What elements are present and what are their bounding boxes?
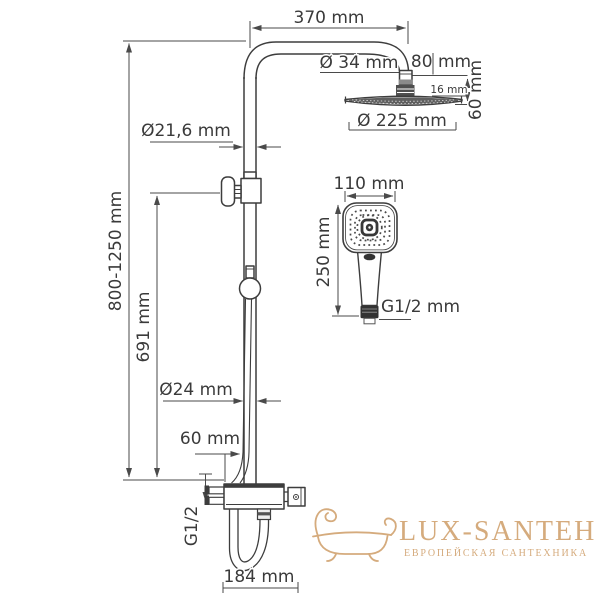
dim-lower-pipe-diameter-label: Ø24 mm [159,380,233,400]
shower-system-drawing: 370 mm Ø 34 mm 80 mm 16 mm 60 mm Ø 225 m… [0,0,600,600]
dim-mixer-width-label: 184 mm [224,567,295,587]
dim-outlet-offset-label: 60 mm [180,429,240,449]
diverter-knob [240,266,261,299]
dim-head-height-label: 60 mm [466,60,486,120]
mode-button [364,254,376,261]
arm-connector [396,71,415,98]
dim-handshower-width-label: 110 mm [334,174,405,194]
watermark: LUX-SANTEH ЕВРОПЕЙСКАЯ САНТЕХНИКА [313,509,596,561]
technical-drawing-svg: 370 mm Ø 34 mm 80 mm 16 mm 60 mm Ø 225 m… [0,0,600,600]
dim-total-height-label: 800-1250 mm [106,191,126,311]
dim-rail-height-label: 691 mm [134,292,154,363]
dim-inlet-thread-label: G1/2 [182,506,202,547]
shower-hose-behind-rail [232,299,252,483]
watermark-brand: LUX-SANTEH [399,516,596,547]
dim-arm-connector-diameter-label: Ø 34 mm [320,53,399,73]
bathtub-icon [313,509,396,561]
dim-head-diameter-label: Ø 225 mm [357,111,447,131]
dim-head-thickness-label: 16 mm [430,84,467,96]
dim-handshower-length-label: 250 mm [314,217,334,288]
wall-bracket [222,172,262,206]
dim-handshower-thread-label: G1/2 mm [381,297,460,317]
overhead-shower-head [345,96,462,105]
dim-head-offset-label: 80 mm [411,52,471,72]
dim-upper-pipe-diameter-label: Ø21,6 mm [141,121,231,141]
dim-top-width-label: 370 mm [294,8,365,28]
watermark-tagline: ЕВРОПЕЙСКАЯ САНТЕХНИКА [404,547,588,559]
thermostat-mixer [205,484,306,520]
